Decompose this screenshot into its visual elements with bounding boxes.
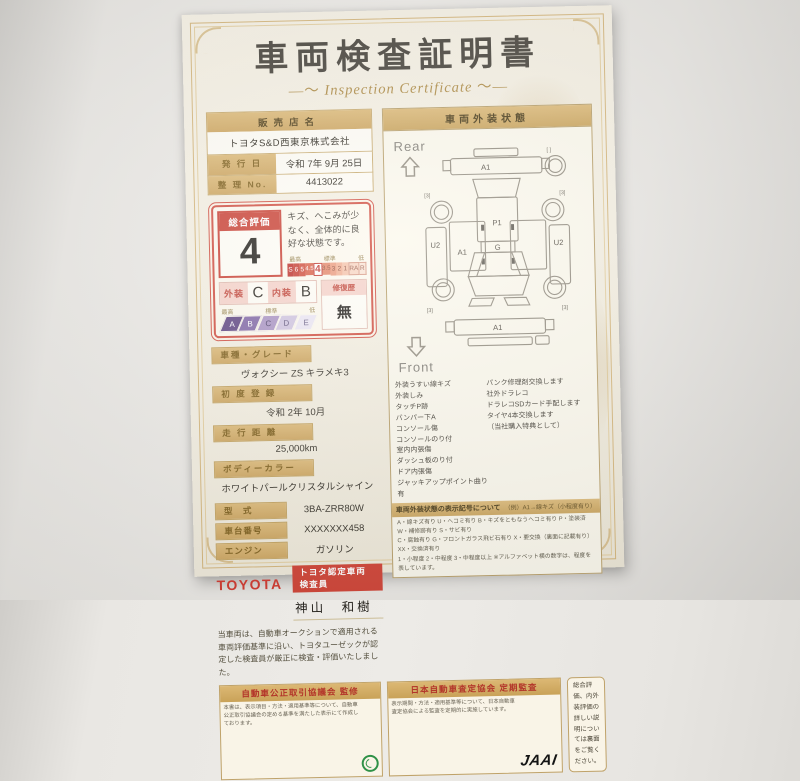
exterior-condition-panel: 車両外装状態 Rear Front [382, 104, 603, 579]
see-reverse-note: 総合評価、内外装評価の詳しい説明については裏面をご覧ください。 [567, 676, 607, 772]
page-title: 車両検査証明書 [204, 34, 591, 80]
legend-title: 車両外装状態の表示記号について [396, 503, 501, 515]
overall-rating-label: 総合評価 [219, 212, 279, 231]
svg-text:U2: U2 [553, 238, 563, 247]
overall-rating: 総合評価 4 [217, 210, 282, 278]
spec-engine: エンジン ガソリン [216, 539, 382, 560]
exterior-interior-grades: 外装 C 内装 B [219, 280, 317, 305]
spec-label: 車台番号 [215, 522, 287, 541]
scale-label-low: 低 [358, 253, 364, 262]
exterior-label: 外装 [220, 282, 248, 304]
interior-grade: B [296, 281, 316, 302]
ref-number-label: 整 理 No. [208, 175, 276, 195]
svg-text:A1: A1 [481, 163, 490, 172]
repair-history-value: 無 [322, 295, 367, 329]
spec-body-color: ボディーカラー ホワイトパールクリスタルシャイン [214, 457, 381, 500]
left-column: 販売店名 トヨタS&D西東京株式会社 発 行 日 令和 7年 9月 25日 整 … [206, 109, 385, 679]
grade-scale: 最高 標準 低 A B C D E [219, 305, 317, 332]
scale-label-high: 最高 [221, 307, 233, 316]
fair-trade-council-box: 自動車公正取引協議会 監修 本書は、表示項目・方法・適用基準等について、自動車公… [219, 682, 383, 781]
spec-first-registration: 初 度 登 録 令和 2年 10月 [212, 382, 379, 425]
car-outline-diagram: A1 [ ] [3] [3] U2 U2 [420, 144, 577, 367]
interior-label: 内装 [268, 281, 296, 303]
dealer-name: トヨタS&D西東京株式会社 [207, 129, 371, 155]
note-item: ジャッキアップポイント曲り有 [397, 477, 489, 501]
car-diagram-area: Rear Front [383, 127, 597, 382]
svg-text:[3]: [3] [559, 191, 566, 197]
scale-label-high: 最高 [289, 254, 301, 263]
see-reverse-text: 総合評価、内外装評価の詳しい説明については裏面をご覧ください。 [573, 681, 601, 769]
fair-trade-council-text: 本書は、表示項目・方法・適用基準等について、自動車公正取引協議会の定める基準を満… [220, 699, 381, 731]
overall-rating-value: 4 [220, 230, 281, 273]
footer-row: 自動車公正取引協議会 監修 本書は、表示項目・方法・適用基準等について、自動車公… [219, 676, 607, 780]
arrow-up-icon [399, 156, 421, 178]
green-seal-icon [362, 755, 379, 772]
spec-model-code: 型 式 3BA-ZRR80W [215, 499, 381, 520]
spec-mileage: 走 行 距 離 25,000km [213, 421, 380, 461]
spec-label: 型 式 [215, 502, 287, 521]
appraisal-association-box: 日本自動車査定協会 定期監査 表示期間・方法・適用基準等について、日本自動車査定… [387, 677, 563, 776]
inspector-block: TOYOTA トヨタ認定車両検査員 神山 和樹 [216, 563, 383, 622]
svg-text:G: G [494, 243, 500, 252]
spec-model-grade: 車種・グレード ヴォクシー ZS キラメキ3 [211, 343, 378, 386]
ref-number-value: 4413022 [276, 173, 372, 193]
legend-example: （例）A1→線キズ（小程度有り） [504, 500, 596, 511]
issue-date-label: 発 行 日 [208, 154, 276, 176]
scale-cell-selected: 4 [313, 263, 322, 276]
spec-value: ホワイトパールクリスタルシャイン [214, 474, 380, 500]
svg-text:[3]: [3] [562, 305, 569, 311]
svg-text:U2: U2 [430, 241, 440, 250]
svg-text:[3]: [3] [427, 308, 434, 314]
rating-comment: キズ、へこみが少なく、全体的に良好な状態です。 [286, 208, 366, 252]
exterior-grade: C [248, 282, 268, 303]
rating-box: 総合評価 4 キズ、へこみが少なく、全体的に良好な状態です。 最高 標準 低 [208, 199, 377, 341]
dealer-block: 販売店名 トヨタS&D西東京株式会社 [206, 109, 373, 156]
repair-history: 修復歴 無 [321, 279, 368, 330]
repair-history-label: 修復歴 [322, 280, 366, 296]
disclaimer-text: 当車両は、自動車オークションで適用される車両評価基準に沿い、トヨタユーゼックが認… [218, 626, 385, 679]
scale-label-mid: 標準 [265, 306, 277, 315]
vehicle-specs: 車種・グレード ヴォクシー ZS キラメキ3 初 度 登 録 令和 2年 10月… [211, 343, 382, 560]
spec-chassis-number: 車台番号 XXXXXXX458 [215, 519, 381, 540]
certificate-paper: 車両検査証明書 Inspection Certificate 販売店名 トヨタS… [182, 5, 625, 577]
jaai-logo: JAAI [519, 752, 558, 770]
scale-cell: 4.5 [305, 263, 314, 275]
scale-cell: 3.5 [322, 263, 331, 275]
scale-label-mid: 標準 [324, 253, 336, 262]
scale-cell: RA [348, 262, 359, 275]
svg-text:[ ]: [ ] [546, 148, 551, 154]
inspection-notes: 外装うすい線キズ 外装しみ タッチP跡 バンパー下A コンソール傷 コンソールの… [389, 377, 600, 503]
legend-line: 1・小程度 2・中程度 3・中程度以上 ※アルファベット横の数字は、程度を表して… [398, 551, 597, 574]
scale-cell: R [359, 262, 366, 275]
spec-value: ガソリン [288, 541, 382, 557]
rating-scale: 最高 標準 低 S 6 5 4.5 4 [287, 251, 366, 277]
issue-date-value: 令和 7年 9月 25日 [276, 152, 372, 174]
ref-number-row: 整 理 No. 4413022 [207, 173, 373, 196]
svg-text:[3]: [3] [424, 194, 431, 200]
spec-label: エンジン [216, 542, 288, 561]
svg-text:A1: A1 [493, 323, 502, 332]
appraisal-association-text: 表示期間・方法・適用基準等について、日本自動車査定協会による監査を定期的に実施し… [388, 694, 560, 718]
spec-value: 3BA-ZRR80W [287, 502, 381, 515]
svg-text:A1: A1 [457, 248, 466, 257]
svg-text:P1: P1 [492, 219, 501, 228]
symbol-legend-lines: A・線キズ有り U・ヘコミ有り B・キズをともなうヘコミ有り P・塗装済 W・補… [392, 512, 601, 577]
toyota-logo: TOYOTA [216, 576, 286, 594]
inspector-badge: トヨタ認定車両検査員 [292, 563, 382, 592]
note-item: （当社購入特典として） [487, 421, 592, 434]
spec-value: XXXXXXX458 [287, 522, 381, 535]
scale-label-low: 低 [309, 305, 315, 314]
